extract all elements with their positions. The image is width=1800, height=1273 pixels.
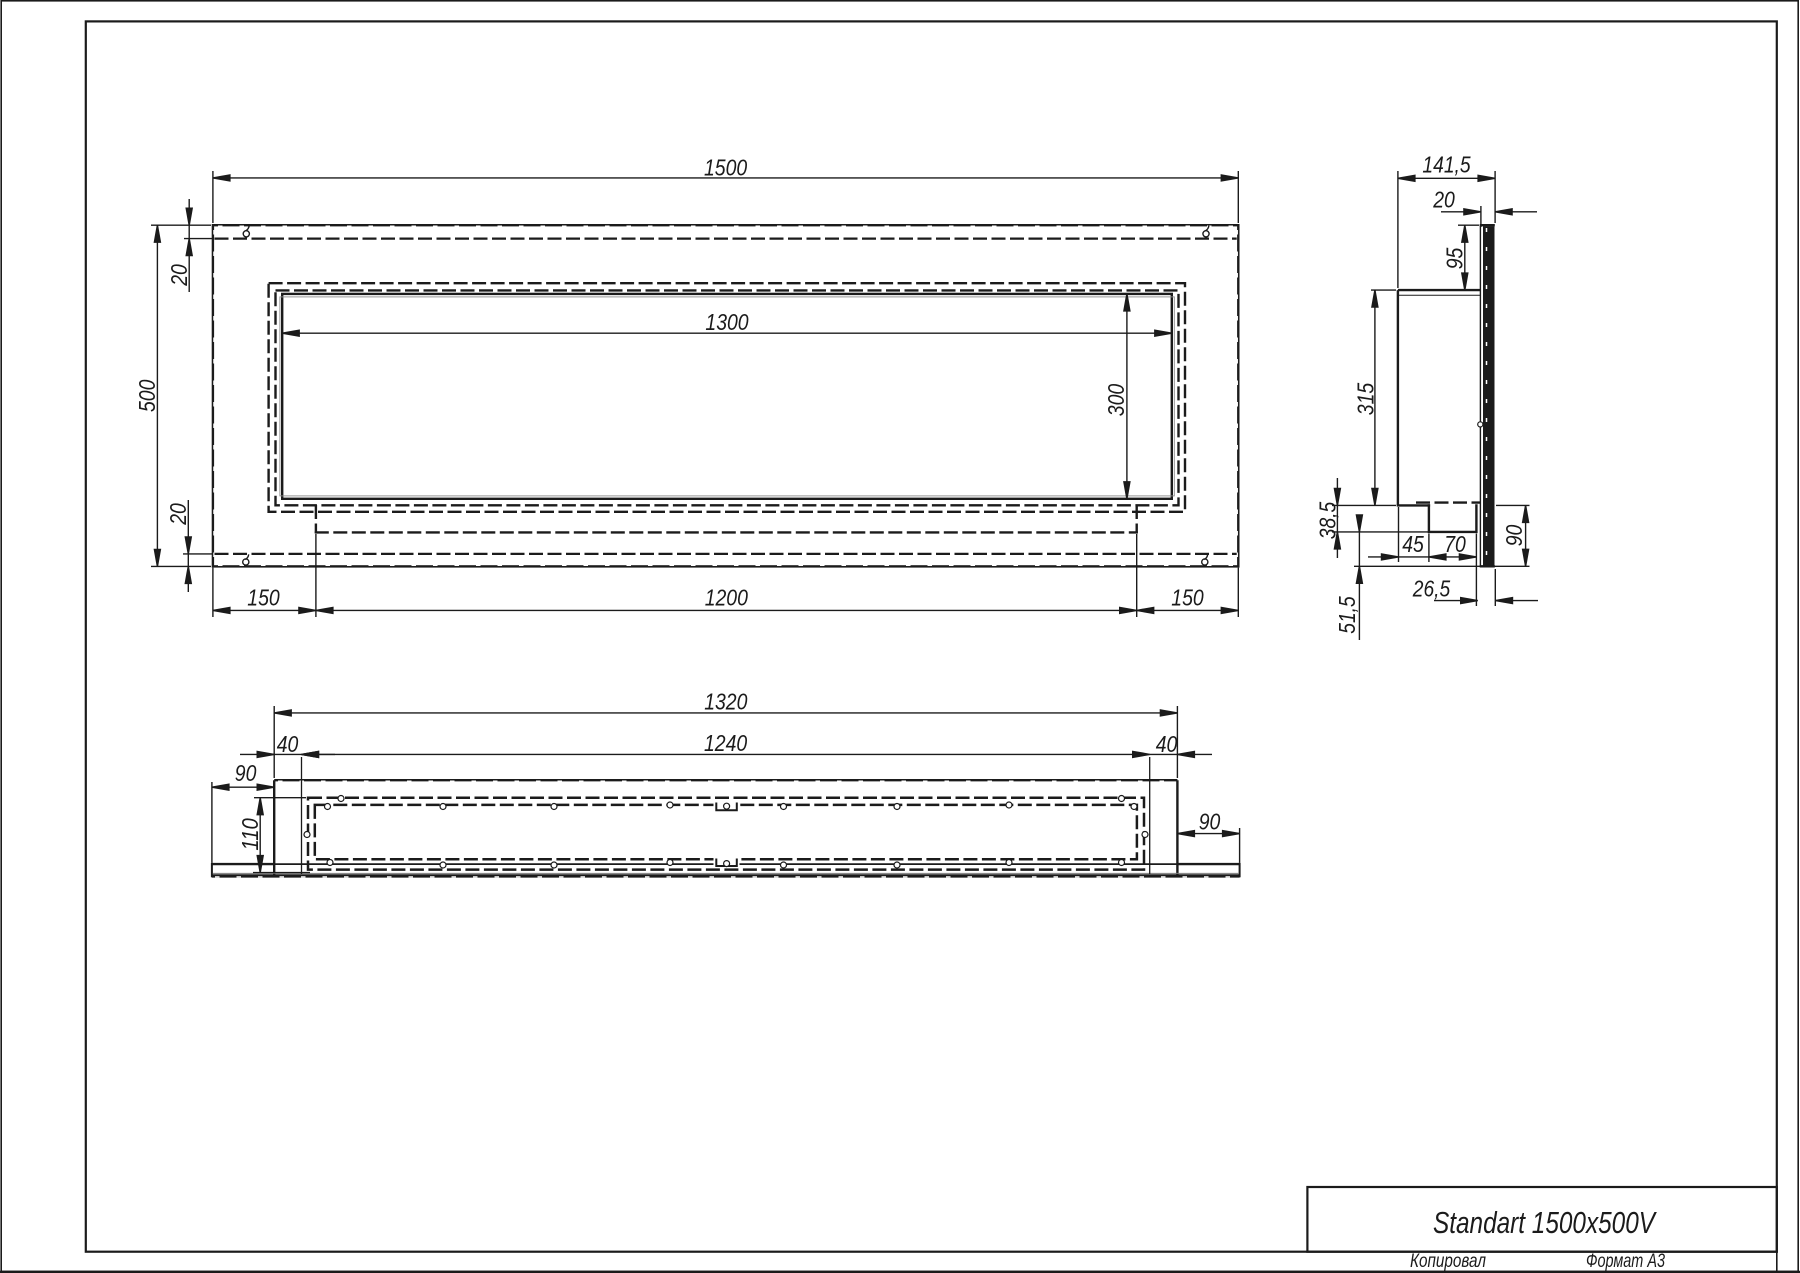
svg-text:20: 20: [1432, 187, 1455, 213]
svg-text:70: 70: [1444, 531, 1466, 557]
svg-text:20: 20: [165, 503, 191, 526]
svg-text:Копировал: Копировал: [1410, 1251, 1486, 1272]
svg-text:51,5: 51,5: [1334, 596, 1360, 634]
svg-text:45: 45: [1402, 531, 1424, 557]
svg-text:90: 90: [1199, 809, 1221, 835]
svg-text:315: 315: [1353, 383, 1379, 416]
svg-text:500: 500: [134, 379, 160, 412]
svg-text:20: 20: [166, 264, 192, 287]
svg-text:1240: 1240: [704, 730, 747, 756]
svg-text:150: 150: [247, 584, 280, 610]
svg-text:1200: 1200: [705, 584, 748, 610]
svg-text:1320: 1320: [704, 689, 747, 715]
svg-text:26,5: 26,5: [1412, 576, 1450, 602]
svg-text:110: 110: [237, 818, 263, 851]
svg-text:90: 90: [235, 760, 257, 786]
svg-text:1500: 1500: [704, 155, 747, 181]
svg-text:300: 300: [1103, 384, 1129, 417]
svg-text:40: 40: [277, 731, 299, 757]
svg-text:40: 40: [1156, 731, 1178, 757]
svg-text:Формат А3: Формат А3: [1586, 1251, 1665, 1272]
svg-text:141,5: 141,5: [1422, 152, 1470, 178]
svg-text:Standart 1500x500V: Standart 1500x500V: [1433, 1205, 1658, 1240]
svg-text:90: 90: [1501, 525, 1527, 547]
svg-text:38,5: 38,5: [1315, 502, 1341, 540]
svg-text:1300: 1300: [705, 309, 748, 335]
svg-text:150: 150: [1171, 584, 1204, 610]
svg-text:95: 95: [1442, 248, 1468, 270]
